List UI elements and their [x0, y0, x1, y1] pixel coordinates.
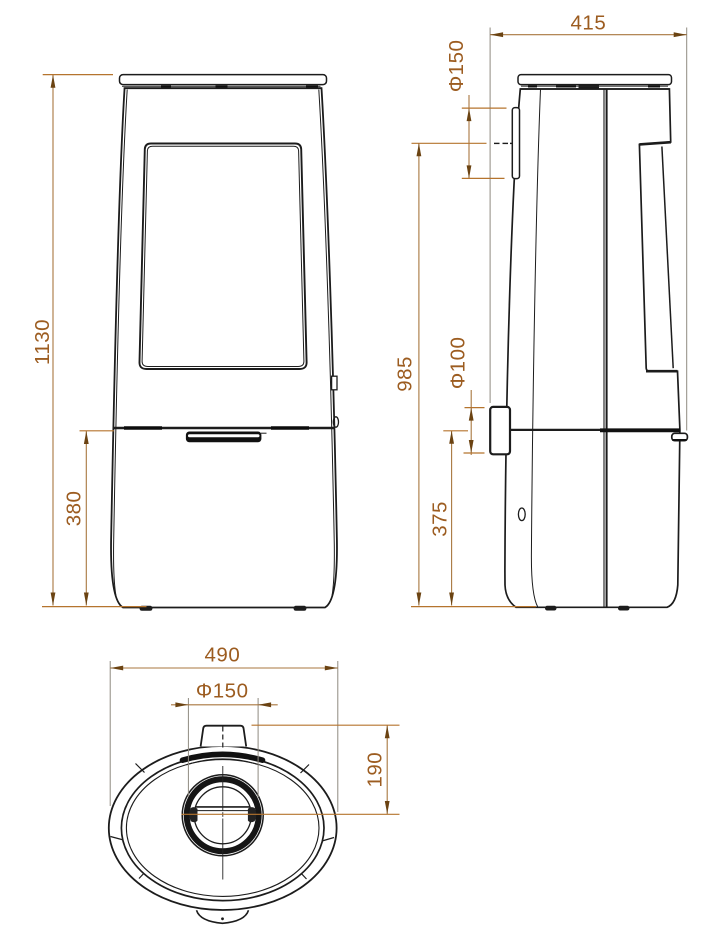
- svg-text:415: 415: [571, 12, 607, 35]
- svg-text:190: 190: [364, 752, 387, 788]
- svg-text:380: 380: [63, 491, 86, 527]
- svg-text:375: 375: [429, 501, 452, 537]
- svg-text:985: 985: [393, 356, 416, 392]
- svg-text:490: 490: [205, 644, 241, 667]
- svg-text:Φ150: Φ150: [445, 40, 468, 93]
- svg-text:Φ150: Φ150: [196, 680, 249, 703]
- svg-text:Φ100: Φ100: [447, 337, 470, 390]
- svg-text:1130: 1130: [31, 319, 54, 365]
